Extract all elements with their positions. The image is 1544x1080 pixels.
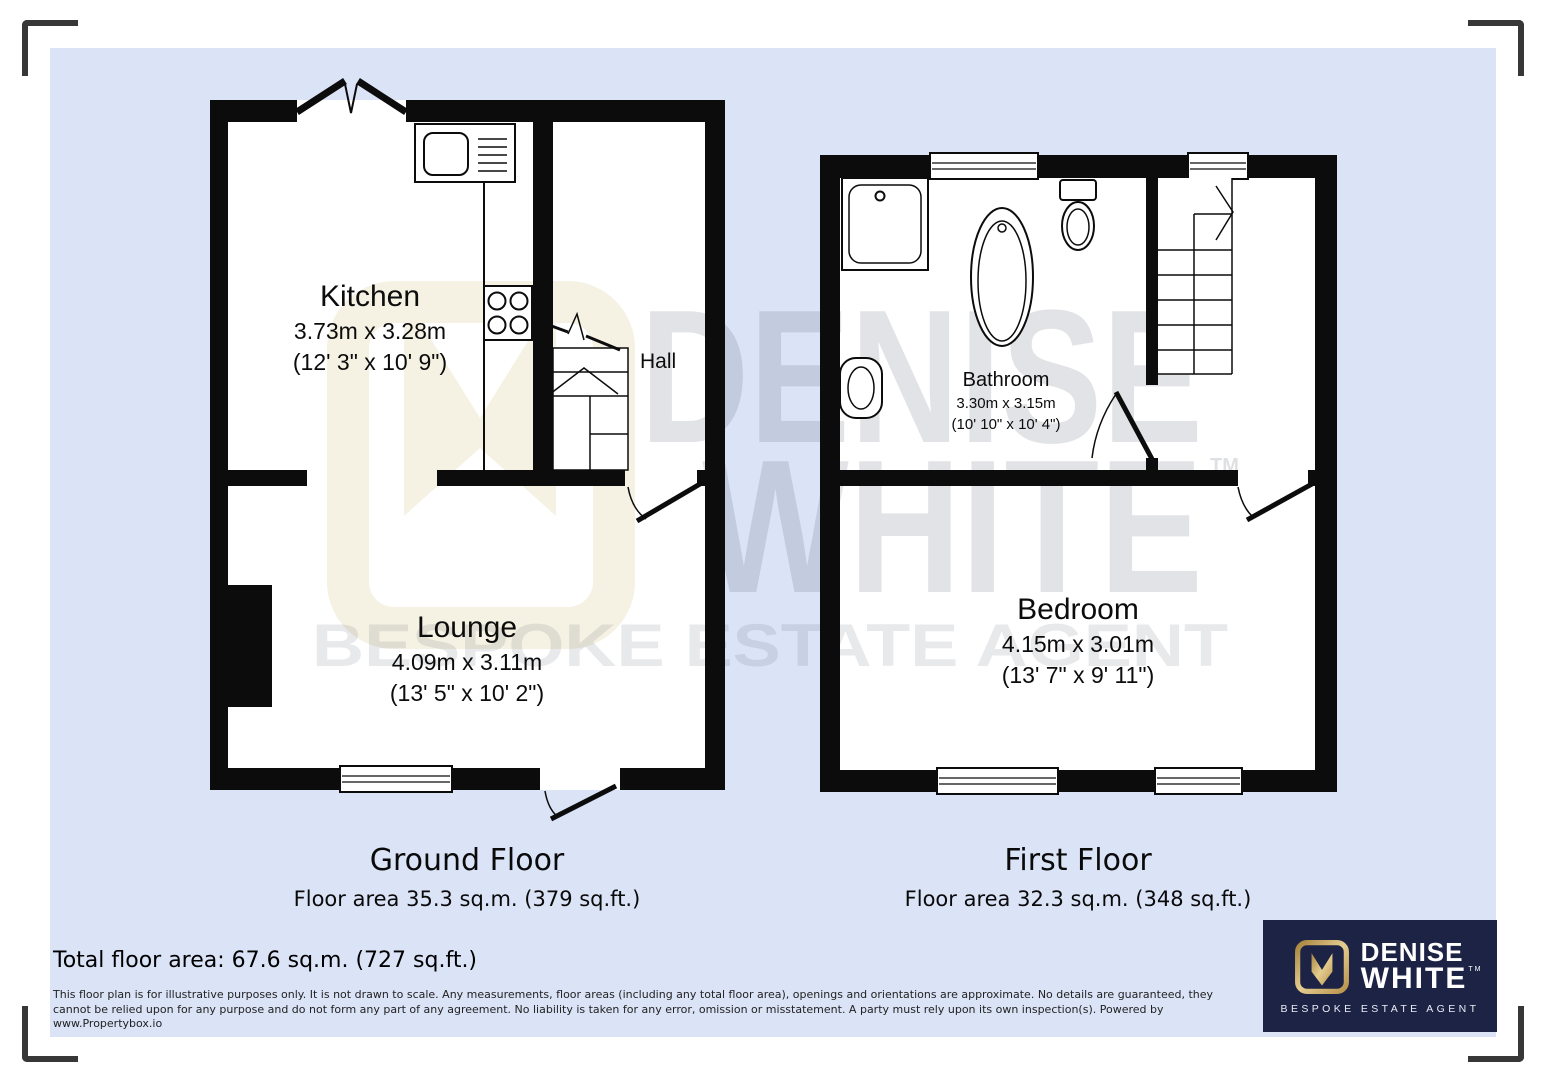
front-door: [545, 786, 616, 819]
chimney-breast: [228, 585, 272, 707]
floor-area: Floor area 35.3 sq.m. (379 sq.ft.): [292, 887, 642, 911]
bay-window: [297, 81, 406, 113]
ground-floor-caption: Ground Floor Floor area 35.3 sq.m. (379 …: [292, 843, 642, 911]
room-name: Bedroom: [928, 595, 1228, 625]
room-dims-metric: 3.73m x 3.28m: [220, 320, 520, 343]
wall: [533, 122, 553, 470]
wall: [705, 100, 725, 790]
floor-title: Ground Floor: [292, 843, 642, 878]
room-label-lounge: Lounge 4.09m x 3.11m (13' 5" x 10' 2"): [317, 613, 617, 705]
room-label-kitchen: Kitchen 3.73m x 3.28m (12' 3" x 10' 9"): [220, 282, 520, 374]
shower-icon: [842, 178, 928, 270]
wall: [1158, 470, 1238, 486]
hall-lounge-door: [628, 484, 700, 521]
wall: [1058, 770, 1155, 792]
room-dims-metric: 3.30m x 3.15m: [906, 396, 1106, 411]
first-floor-caption: First Floor Floor area 32.3 sq.m. (348 s…: [903, 843, 1253, 911]
window: [340, 766, 452, 792]
agency-logo: DENISE WHITETM BESPOKE ESTATE AGENT: [1263, 920, 1497, 1032]
wall: [210, 470, 307, 486]
kitchen-sink-unit: [415, 124, 515, 182]
wall: [820, 770, 937, 792]
wall: [406, 100, 725, 122]
first-floor-stairs: [1158, 178, 1233, 374]
room-name: Lounge: [317, 613, 617, 643]
floor-title: First Floor: [903, 843, 1253, 878]
basin-icon: [840, 358, 882, 418]
wall: [1146, 178, 1158, 385]
room-dims-imperial: (13' 5" x 10' 2"): [317, 682, 617, 705]
total-floor-area: Total floor area: 67.6 sq.m. (727 sq.ft.…: [53, 948, 477, 973]
disclaimer-text: This floor plan is for illustrative purp…: [53, 988, 1243, 1032]
room-dims-imperial: (13' 7" x 9' 11"): [928, 664, 1228, 687]
logo-tagline: BESPOKE ESTATE AGENT: [1281, 1003, 1480, 1015]
room-dims-metric: 4.15m x 3.01m: [928, 633, 1228, 656]
bathtub-icon: [971, 208, 1033, 346]
logo-tm: TM: [1468, 967, 1482, 974]
ground-stairs: [546, 314, 628, 470]
wall: [840, 470, 1146, 486]
wall: [1146, 458, 1158, 486]
wall: [437, 470, 625, 486]
toilet-icon: [1060, 180, 1096, 250]
wall: [452, 768, 540, 790]
floor-area: Floor area 32.3 sq.m. (348 sq.ft.): [903, 887, 1253, 911]
wall: [210, 100, 228, 790]
room-dims-imperial: (10' 10" x 10' 4"): [906, 417, 1106, 432]
wall: [1038, 155, 1188, 178]
wall: [620, 768, 725, 790]
room-dims-metric: 4.09m x 3.11m: [317, 651, 617, 674]
room-name: Bathroom: [906, 370, 1106, 390]
wall: [820, 155, 840, 792]
room-label-bathroom: Bathroom 3.30m x 3.15m (10' 10" x 10' 4"…: [906, 370, 1106, 432]
wall: [1242, 770, 1337, 792]
logo-name-line2: WHITE: [1361, 962, 1468, 995]
room-label-bedroom: Bedroom 4.15m x 3.01m (13' 7" x 9' 11"): [928, 595, 1228, 687]
wall: [1315, 155, 1337, 792]
wall: [210, 768, 340, 790]
room-dims-imperial: (12' 3" x 10' 9"): [220, 351, 520, 374]
room-label-hall: Hall: [640, 350, 676, 374]
plan-linework: [0, 0, 1544, 1080]
logo-monogram-icon: [1293, 938, 1351, 996]
room-name: Kitchen: [220, 282, 520, 312]
floorplan-page: DENISE WHITE TM BESPOKE ESTATE AGENT: [0, 0, 1544, 1080]
bedroom-door: [1238, 484, 1312, 520]
